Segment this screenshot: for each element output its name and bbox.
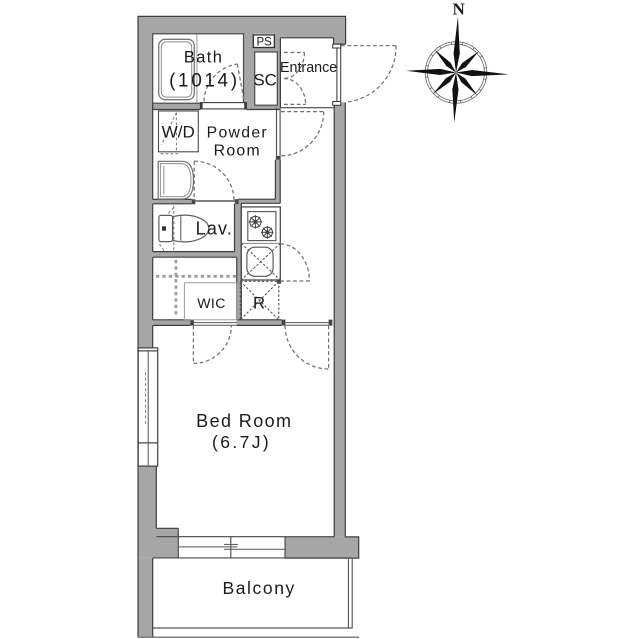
svg-text:(6.7J): (6.7J) — [212, 432, 271, 452]
svg-text:R: R — [253, 294, 265, 313]
svg-text:SC: SC — [253, 71, 276, 90]
svg-text:W/D: W/D — [162, 122, 195, 141]
svg-text:(1014): (1014) — [169, 71, 240, 92]
svg-text:N: N — [452, 0, 465, 18]
svg-text:Balcony: Balcony — [222, 578, 295, 598]
svg-text:Entrance: Entrance — [280, 60, 337, 76]
svg-text:PS: PS — [257, 36, 273, 48]
svg-text:Room: Room — [214, 143, 261, 160]
svg-text:Bath: Bath — [184, 49, 224, 67]
svg-text:WIC: WIC — [197, 295, 226, 311]
svg-text:Powder: Powder — [207, 125, 268, 142]
svg-text:Lav.: Lav. — [196, 219, 234, 239]
svg-text:Bed Room: Bed Room — [196, 411, 292, 431]
